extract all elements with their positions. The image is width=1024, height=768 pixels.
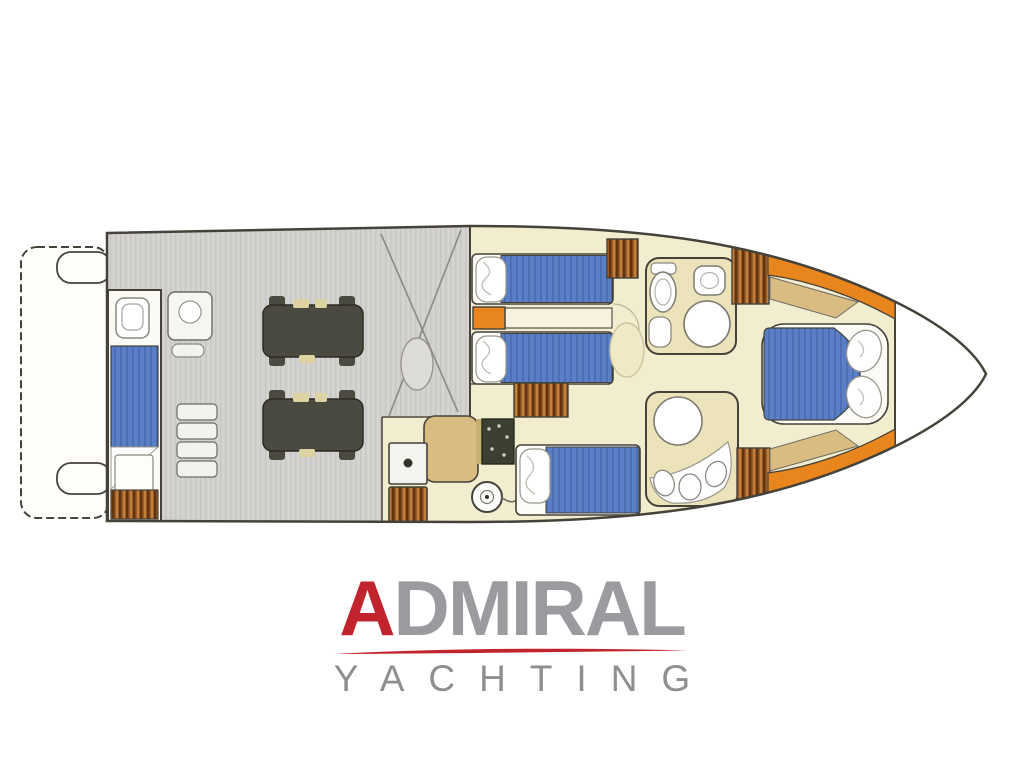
bow-owner-cabin [762,251,895,497]
shower [654,397,702,445]
logo-brand-rest: DMIRAL [394,564,685,652]
crew-steps [111,490,158,519]
logo-subtitle: YACHTING [302,659,746,699]
bidet [679,474,701,500]
toilet [650,272,676,312]
corridor-table [610,323,644,377]
crew-bed [111,346,158,447]
nightstand [473,307,505,329]
galley-counter [424,416,478,482]
twin-bed-2 [501,334,612,383]
shower [684,301,730,347]
lower-head [646,392,738,506]
oven [389,487,427,522]
yacht-floorplan-svg [0,0,1024,560]
bow-locker [895,225,1024,525]
mid-cabin [516,445,640,515]
pillow [476,336,506,382]
platform-step-bottom [57,463,111,494]
pillow [476,257,506,302]
logo-letter-a: A [339,564,393,652]
crew-cabin [108,290,161,521]
bidet [649,317,671,347]
wardrobe [607,239,638,278]
twin-bed-1 [501,256,612,303]
upper-head [646,258,736,354]
double-bed [764,328,860,420]
mid-cabin-bed [546,447,639,513]
yacht-floorplan [0,0,1024,560]
platform-step-top [57,252,111,283]
wardrobe [514,383,568,417]
admiral-yachting-logo: ADMIRAL YACHTING [302,572,722,699]
washbasin [694,266,725,295]
pillow [520,449,550,503]
port-engine [263,296,363,366]
logo-brand: ADMIRAL [302,572,722,644]
wardrobe [737,448,770,512]
starboard-engine [263,390,363,460]
shelf [505,308,612,328]
swim-platform [21,247,111,518]
